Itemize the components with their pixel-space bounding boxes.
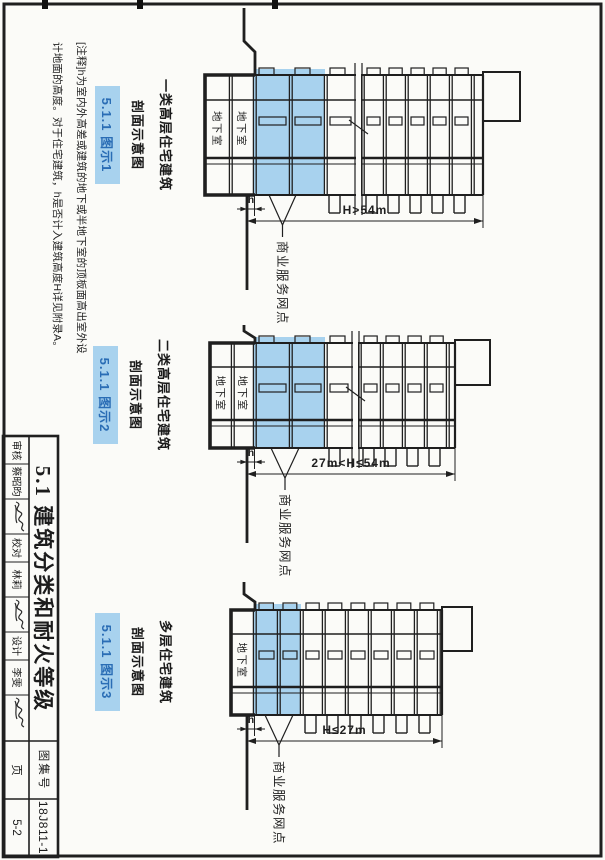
basement-label: 地下室	[235, 111, 248, 147]
caption-view-type: 剖面示意图	[129, 542, 148, 782]
caption-view-type: 剖面示意图	[127, 275, 146, 515]
checker-name: 林莉	[3, 562, 28, 597]
building-section-2: 地下室地下室h27m<H≤54m商业服务网点	[210, 325, 490, 578]
basement-label: 地下室	[236, 643, 249, 679]
caption-building-type: 一类高层住宅建筑	[157, 15, 176, 255]
signature-designer	[15, 698, 24, 727]
leader-label: 商业服务网点	[272, 761, 287, 845]
page-number-label: 页	[3, 741, 28, 799]
page-number: 5-2	[3, 799, 28, 856]
note-line-2: 计地面的高度。对于住宅建筑，h是否计入建筑高度H详见附录A。	[45, 42, 69, 382]
building-section-3: 地下室hH≤27m商业服务网点	[231, 582, 472, 845]
atlas-page: 地下室地下室hH>54m商业服务网点地下室地下室h27m<H≤54m商业服务网点…	[0, 0, 605, 860]
signature-reviewer	[15, 502, 24, 531]
checker-label: 校对	[3, 534, 28, 562]
figure-caption-2: 二类高层住宅建筑 剖面示意图 5.1.1 图示2	[93, 275, 174, 515]
figure-tag-1: 5.1.1 图示1	[95, 86, 120, 185]
reviewer-name: 蔡昭昀	[3, 464, 28, 499]
h-dim-label: h	[248, 447, 254, 459]
atlas-number: 18J811-1	[29, 799, 57, 856]
h-dim-label: h	[248, 194, 254, 206]
registration-mark	[137, 0, 143, 9]
height-dimension-label: H>54m	[343, 203, 388, 217]
height-dimension-label: H≤27m	[322, 723, 366, 737]
caption-building-type: 二类高层住宅建筑	[155, 275, 174, 515]
registration-mark	[272, 0, 278, 9]
basement-label: 地下室	[214, 376, 227, 412]
registration-mark	[42, 0, 48, 9]
designer-name: 李雯	[3, 660, 28, 695]
basement-label: 地下室	[236, 376, 249, 412]
building-section-1: 地下室地下室hH>54m商业服务网点	[205, 8, 520, 325]
figure-caption-3: 多层住宅建筑 剖面示意图 5.1.1 图示3	[95, 542, 176, 782]
leader-label: 商业服务网点	[275, 241, 290, 325]
h-dim-label: h	[248, 714, 254, 726]
reviewer-label: 审核	[3, 437, 28, 464]
designer-label: 设计	[3, 632, 28, 660]
note-line-1: [注释]h为室内外高差或建筑的地下或半地下室的顶板面高出室外设	[69, 42, 93, 382]
caption-view-type: 剖面示意图	[129, 15, 148, 255]
atlas-number-label: 图集号	[29, 741, 57, 799]
caption-building-type: 多层住宅建筑	[157, 542, 176, 782]
signature-checker	[15, 600, 24, 629]
basement-label: 地下室	[211, 111, 224, 147]
figure-tag-2: 5.1.1 图示2	[93, 346, 118, 445]
leader-label: 商业服务网点	[278, 494, 293, 578]
drawing-canvas: 地下室地下室hH>54m商业服务网点地下室地下室h27m<H≤54m商业服务网点…	[0, 0, 605, 860]
figure-tag-3: 5.1.1 图示3	[95, 613, 120, 712]
note-text: [注释]h为室内外高差或建筑的地下或半地下室的顶板面高出室外设 计地面的高度。对…	[45, 42, 92, 382]
page-title: 5.1 建筑分类和耐火等级	[29, 437, 57, 741]
figure-caption-1: 一类高层住宅建筑 剖面示意图 5.1.1 图示1	[95, 15, 176, 255]
height-dimension-label: 27m<H≤54m	[311, 456, 390, 470]
